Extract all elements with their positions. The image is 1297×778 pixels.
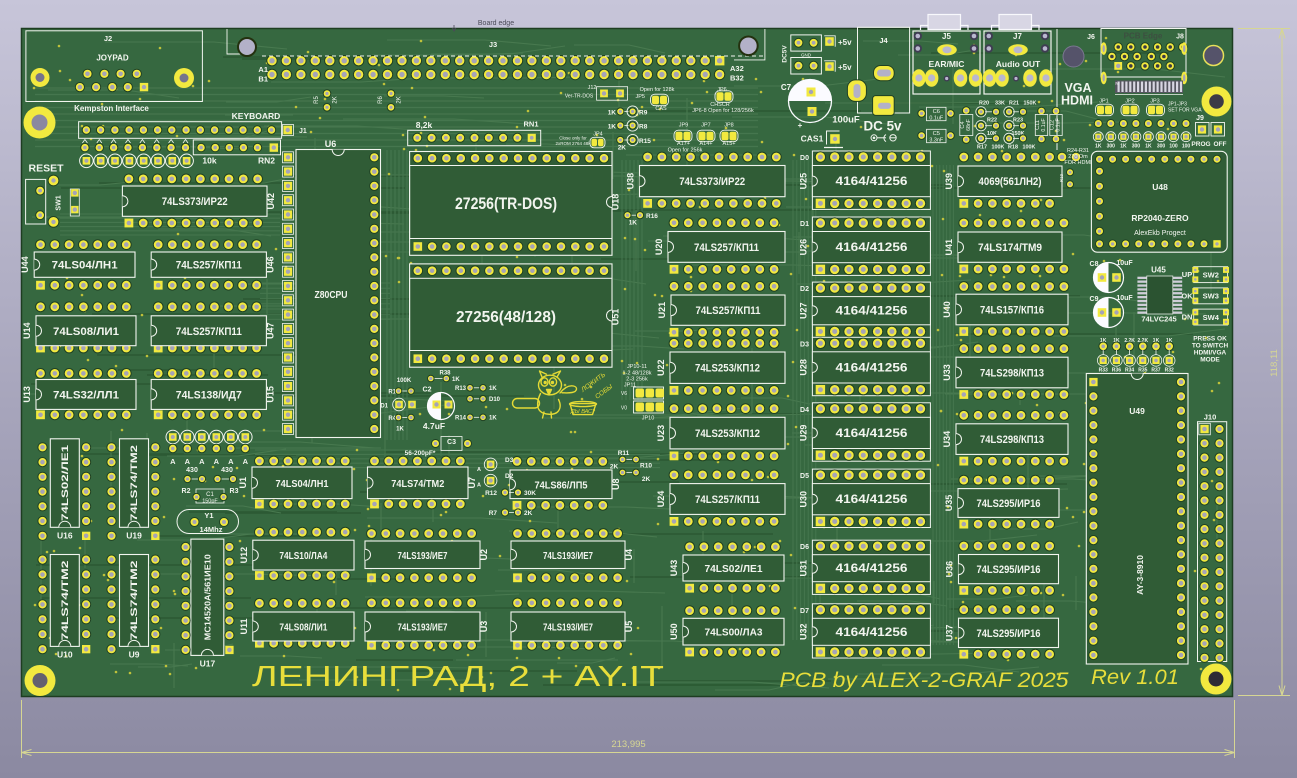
svg-text:4164/41256: 4164/41256 xyxy=(836,494,908,506)
svg-text:D3: D3 xyxy=(505,457,514,464)
svg-text:SW4: SW4 xyxy=(1203,313,1220,322)
svg-text:+: + xyxy=(798,121,803,130)
svg-text:A14+: A14+ xyxy=(700,141,713,147)
svg-text:74LS74/ТМ2: 74LS74/ТМ2 xyxy=(391,479,444,490)
svg-text:B1: B1 xyxy=(258,75,268,84)
svg-text:R19: R19 xyxy=(1059,173,1064,182)
svg-text:PROG: PROG xyxy=(1191,141,1210,148)
svg-text:D2: D2 xyxy=(505,473,514,480)
svg-text:U22: U22 xyxy=(656,359,666,376)
svg-text:74LS32/ЛЛ1: 74LS32/ЛЛ1 xyxy=(53,389,119,401)
svg-text:1K: 1K xyxy=(1095,144,1102,150)
svg-text:U27: U27 xyxy=(799,302,809,319)
svg-text:C1: C1 xyxy=(206,492,214,498)
svg-text:UP: UP xyxy=(1182,270,1192,279)
svg-text:4164/41256: 4164/41256 xyxy=(836,176,908,188)
svg-text:U18: U18 xyxy=(611,194,621,211)
svg-text:Close only for: Close only for xyxy=(559,136,587,141)
svg-text:74LS373/ИР22: 74LS373/ИР22 xyxy=(162,196,228,208)
svg-text:+5v: +5v xyxy=(838,38,852,47)
svg-text:U15: U15 xyxy=(265,386,275,403)
svg-text:U12: U12 xyxy=(239,547,249,564)
svg-text:SET FOR VGA: SET FOR VGA xyxy=(1168,108,1202,114)
svg-text:R21: R21 xyxy=(1009,101,1019,107)
svg-text:D2: D2 xyxy=(800,286,809,293)
svg-text:A: A xyxy=(185,457,191,466)
svg-text:100K: 100K xyxy=(992,145,1005,151)
svg-text:74LS257/КП11: 74LS257/КП11 xyxy=(694,242,759,254)
svg-text:1K: 1K xyxy=(608,110,617,117)
svg-text:27256(48/128): 27256(48/128) xyxy=(456,309,556,326)
svg-text:D7: D7 xyxy=(800,608,809,615)
svg-text:2K: 2K xyxy=(618,145,627,152)
svg-text:C2: C2 xyxy=(423,387,432,394)
svg-text:U1: U1 xyxy=(238,477,248,489)
svg-text:10k: 10k xyxy=(202,156,216,166)
svg-text:R17: R17 xyxy=(977,145,987,151)
svg-text:+5v: +5v xyxy=(838,63,852,72)
svg-text:2K: 2K xyxy=(333,96,339,103)
svg-text:JOYPAD: JOYPAD xyxy=(96,54,129,63)
svg-text:J3: J3 xyxy=(489,40,497,49)
svg-text:Open for 128k: Open for 128k xyxy=(640,87,675,93)
svg-text:R14: R14 xyxy=(455,416,467,422)
svg-text:74LS02/ЛЕ1: 74LS02/ЛЕ1 xyxy=(60,444,71,521)
svg-text:4164/41256: 4164/41256 xyxy=(836,627,908,639)
svg-text:74LS174/ТМ9: 74LS174/ТМ9 xyxy=(978,242,1042,254)
svg-text:JP6-8 Open for 128/256k: JP6-8 Open for 128/256k xyxy=(692,108,754,114)
svg-text:JP2: JP2 xyxy=(1125,99,1134,105)
svg-text:D3: D3 xyxy=(800,341,809,348)
svg-text:U17: U17 xyxy=(200,658,216,668)
svg-text:U26: U26 xyxy=(799,239,809,256)
svg-text:A: A xyxy=(243,457,249,466)
svg-text:Kempston Interface: Kempston Interface xyxy=(74,104,149,113)
svg-text:74LS00/ЛА3: 74LS00/ЛА3 xyxy=(705,628,763,639)
svg-text:C3: C3 xyxy=(447,439,456,446)
svg-text:10uF: 10uF xyxy=(1116,295,1133,302)
svg-text:U7: U7 xyxy=(467,477,477,489)
svg-text:14Mhz: 14Mhz xyxy=(200,525,223,534)
svg-text:J5: J5 xyxy=(942,32,951,41)
svg-text:68nF: 68nF xyxy=(966,119,972,131)
svg-text:R33: R33 xyxy=(1099,368,1108,374)
svg-text:2K: 2K xyxy=(397,96,403,103)
svg-text:Y1: Y1 xyxy=(204,511,213,520)
svg-text:R37: R37 xyxy=(1151,368,1160,374)
svg-text:C5: C5 xyxy=(933,131,940,137)
svg-text:SW3: SW3 xyxy=(1203,292,1219,301)
svg-text:430: 430 xyxy=(186,467,198,474)
svg-text:RP2040-ZERO: RP2040-ZERO xyxy=(1131,213,1189,223)
svg-text:U21: U21 xyxy=(657,302,667,319)
svg-text:4164/41256: 4164/41256 xyxy=(836,242,908,254)
svg-text:R9: R9 xyxy=(639,110,648,117)
svg-text:74LS04/ЛН1: 74LS04/ЛН1 xyxy=(52,260,118,272)
svg-text:Board edge: Board edge xyxy=(478,20,514,27)
svg-text:1K: 1K xyxy=(452,377,460,383)
svg-text:74LS298/КП13: 74LS298/КП13 xyxy=(980,434,1044,446)
svg-text:213,995: 213,995 xyxy=(611,739,645,750)
svg-text:U37: U37 xyxy=(945,625,955,642)
svg-text:J1: J1 xyxy=(299,128,307,135)
svg-text:74LS138/ИД7: 74LS138/ИД7 xyxy=(176,389,242,401)
svg-text:74LS74/ТМ2: 74LS74/ТМ2 xyxy=(129,445,140,521)
svg-text:74LS295/ИР16: 74LS295/ИР16 xyxy=(977,564,1041,576)
svg-text:74LS257/КП11: 74LS257/КП11 xyxy=(176,260,242,272)
svg-text:OK: OK xyxy=(1181,291,1193,300)
svg-text:RN1: RN1 xyxy=(523,120,538,129)
svg-text:74LS08/ЛИ1: 74LS08/ЛИ1 xyxy=(53,326,119,338)
svg-text:U16: U16 xyxy=(57,530,73,540)
svg-text:GND: GND xyxy=(801,52,812,57)
svg-text:1K: 1K xyxy=(1145,144,1152,150)
svg-text:JP10-11: JP10-11 xyxy=(627,364,647,370)
svg-text:CAS: CAS xyxy=(655,106,667,112)
svg-text:30K: 30K xyxy=(524,490,536,497)
svg-text:DN: DN xyxy=(1182,313,1193,322)
svg-text:U36: U36 xyxy=(945,561,955,578)
svg-text:C7: C7 xyxy=(781,83,792,92)
svg-text:U38: U38 xyxy=(626,173,636,190)
svg-text:U34: U34 xyxy=(942,431,952,448)
svg-text:74LS193/ИЕ7: 74LS193/ИЕ7 xyxy=(543,551,593,562)
svg-text:JP1: JP1 xyxy=(1099,99,1108,105)
svg-text:U31: U31 xyxy=(799,560,809,577)
svg-text:2xROM 2764 48k: 2xROM 2764 48k xyxy=(555,141,591,146)
svg-text:J10: J10 xyxy=(1204,413,1217,422)
svg-text:118,11: 118,11 xyxy=(1269,349,1280,377)
svg-text:ЛЕНИНГРАД, 2 + AY.IT: ЛЕНИНГРАД, 2 + AY.IT xyxy=(252,661,664,693)
svg-text:300: 300 xyxy=(1107,144,1116,150)
svg-text:U29: U29 xyxy=(799,425,809,442)
svg-text:JP3: JP3 xyxy=(1150,99,1159,105)
svg-text:2K: 2K xyxy=(524,510,533,517)
svg-text:J7: J7 xyxy=(1013,32,1022,41)
svg-text:74LS257/КП11: 74LS257/КП11 xyxy=(696,305,761,317)
svg-text:RN2: RN2 xyxy=(258,156,275,166)
svg-text:R12: R12 xyxy=(485,490,497,497)
svg-text:N: N xyxy=(1115,81,1118,86)
svg-text:RESET: RESET xyxy=(28,163,64,175)
svg-text:J12: J12 xyxy=(588,85,597,91)
svg-text:1K: 1K xyxy=(629,220,638,227)
svg-text:R32: R32 xyxy=(1165,368,1174,374)
svg-text:R6: R6 xyxy=(378,96,384,104)
svg-text:C8: C8 xyxy=(1090,261,1099,268)
svg-text:1K: 1K xyxy=(489,416,497,422)
svg-text:B32: B32 xyxy=(730,74,744,83)
svg-text:300: 300 xyxy=(1157,144,1166,150)
svg-text:D10: D10 xyxy=(489,397,501,403)
svg-text:74LS295/ИР16: 74LS295/ИР16 xyxy=(977,498,1041,510)
svg-text:R34: R34 xyxy=(1125,368,1134,374)
svg-text:D1: D1 xyxy=(380,404,388,410)
svg-text:U49: U49 xyxy=(1129,406,1145,416)
svg-text:R10: R10 xyxy=(640,463,652,470)
svg-text:74LS86/ЛП5: 74LS86/ЛП5 xyxy=(535,480,588,491)
svg-text:ДЫ ВАС?: ДЫ ВАС? xyxy=(570,409,596,415)
svg-text:33K: 33K xyxy=(995,101,1005,107)
svg-text:74LS257/КП11: 74LS257/КП11 xyxy=(176,326,242,338)
svg-text:74LS253/КП12: 74LS253/КП12 xyxy=(695,428,760,440)
svg-text:1K: 1K xyxy=(396,427,404,433)
svg-text:D6: D6 xyxy=(800,544,809,551)
svg-text:A: A xyxy=(228,457,234,466)
svg-text:MODE: MODE xyxy=(1200,357,1220,364)
svg-text:U8: U8 xyxy=(611,479,621,491)
svg-text:R36: R36 xyxy=(1112,368,1121,374)
svg-text:U13: U13 xyxy=(22,386,32,403)
svg-text:2K: 2K xyxy=(610,464,619,471)
svg-text:A: A xyxy=(477,467,481,473)
svg-text:U14: U14 xyxy=(22,323,32,340)
svg-text:74LS08/ЛИ1: 74LS08/ЛИ1 xyxy=(279,623,327,634)
svg-text:74LS257/КП11: 74LS257/КП11 xyxy=(695,494,760,506)
svg-text:74LS74/ТМ2: 74LS74/ТМ2 xyxy=(129,561,140,641)
svg-text:SW1: SW1 xyxy=(56,195,63,210)
svg-text:74LS193/ИЕ7: 74LS193/ИЕ7 xyxy=(398,623,448,634)
svg-text:D1: D1 xyxy=(800,221,809,228)
svg-text:U28: U28 xyxy=(799,359,809,376)
svg-text:MC14520A/561ИЕ10: MC14520A/561ИЕ10 xyxy=(202,554,212,640)
svg-text:PCB by ALEX-2-GRAF 2025: PCB by ALEX-2-GRAF 2025 xyxy=(780,669,1069,692)
svg-text:FOR HDMI: FOR HDMI xyxy=(1064,160,1092,166)
svg-text:KEYBOARD: KEYBOARD xyxy=(232,111,281,121)
svg-text:100: 100 xyxy=(1169,144,1178,150)
svg-text:U41: U41 xyxy=(944,239,954,256)
svg-text:U35: U35 xyxy=(944,495,954,512)
svg-text:R16: R16 xyxy=(646,213,658,220)
svg-text:A15+: A15+ xyxy=(723,141,736,147)
svg-text:U48: U48 xyxy=(1152,182,1168,192)
svg-text:U44: U44 xyxy=(20,256,30,273)
svg-text:R2: R2 xyxy=(182,488,191,495)
svg-text:100uF: 100uF xyxy=(832,115,860,126)
svg-text:74LS04/ЛН1: 74LS04/ЛН1 xyxy=(276,479,329,490)
svg-text:JP10: JP10 xyxy=(642,416,655,422)
svg-text:A: A xyxy=(477,483,481,489)
svg-text:2K: 2K xyxy=(642,476,651,483)
svg-text:4.7uF: 4.7uF xyxy=(423,421,445,431)
svg-text:JP11: JP11 xyxy=(624,383,636,389)
svg-text:U33: U33 xyxy=(942,364,952,381)
svg-text:U19: U19 xyxy=(126,530,142,540)
svg-text:300: 300 xyxy=(1132,144,1141,150)
svg-text:0.1uF: 0.1uF xyxy=(1041,118,1047,131)
svg-text:A1: A1 xyxy=(258,65,268,74)
svg-text:4164/41256: 4164/41256 xyxy=(836,306,908,318)
svg-text:D5: D5 xyxy=(800,473,809,480)
svg-text:U5: U5 xyxy=(624,621,634,633)
svg-text:150K: 150K xyxy=(1024,101,1037,107)
svg-text:4069(561ЛН2): 4069(561ЛН2) xyxy=(979,176,1042,188)
svg-text:U32: U32 xyxy=(799,624,809,641)
svg-text:74LS10/ЛА4: 74LS10/ЛА4 xyxy=(279,551,327,562)
svg-text:U10: U10 xyxy=(57,649,73,659)
svg-text:100: 100 xyxy=(1182,144,1191,150)
svg-text:J4: J4 xyxy=(879,36,888,45)
svg-text:U2: U2 xyxy=(479,549,489,561)
svg-text:R5: R5 xyxy=(314,96,320,104)
svg-text:56-200pF*: 56-200pF* xyxy=(405,450,436,457)
svg-text:150pF: 150pF xyxy=(202,499,218,505)
svg-text:EAR/MIC: EAR/MIC xyxy=(929,59,965,69)
svg-text:U47: U47 xyxy=(265,323,275,340)
svg-text:U9: U9 xyxy=(129,649,140,659)
svg-text:U24: U24 xyxy=(656,491,666,508)
svg-text:27256(TR-DOS): 27256(TR-DOS) xyxy=(455,194,557,213)
svg-text:4164/41256: 4164/41256 xyxy=(836,362,908,374)
svg-text:1K: 1K xyxy=(1120,144,1127,150)
svg-text:74LS373/ИР22: 74LS373/ИР22 xyxy=(679,176,745,188)
svg-text:U25: U25 xyxy=(799,173,809,190)
svg-text:4164/41256: 4164/41256 xyxy=(836,428,908,440)
svg-text:Open for 256k: Open for 256k xyxy=(668,148,703,154)
svg-text:J2: J2 xyxy=(104,34,112,43)
svg-text:R7: R7 xyxy=(489,510,498,517)
svg-text:AY-3-8910: AY-3-8910 xyxy=(1135,555,1145,595)
svg-text:Ver-TR-DOS: Ver-TR-DOS xyxy=(565,94,594,100)
svg-text:74LS02/ЛЕ1: 74LS02/ЛЕ1 xyxy=(705,564,763,575)
svg-text:A: A xyxy=(199,457,205,466)
svg-text:JP9: JP9 xyxy=(679,123,688,129)
svg-text:74LS193/ИЕ7: 74LS193/ИЕ7 xyxy=(543,623,593,634)
svg-text:DC 5v: DC 5v xyxy=(864,119,902,134)
svg-text:1K: 1K xyxy=(608,124,617,131)
svg-text:V0: V0 xyxy=(621,406,627,412)
svg-text:CAS1: CAS1 xyxy=(801,134,824,144)
svg-text:74LS74/ТМ2: 74LS74/ТМ2 xyxy=(60,561,71,641)
svg-text:3.3nF: 3.3nF xyxy=(929,138,943,144)
svg-text:74LVC245: 74LVC245 xyxy=(1141,315,1176,324)
svg-text:74LS193/ИЕ7: 74LS193/ИЕ7 xyxy=(398,551,448,562)
svg-text:A: A xyxy=(214,457,220,466)
svg-text:0.1uF: 0.1uF xyxy=(929,116,943,122)
svg-text:74LS295/ИР16: 74LS295/ИР16 xyxy=(977,628,1041,640)
svg-text:OFF: OFF xyxy=(1214,141,1227,148)
svg-text:SW2: SW2 xyxy=(1203,270,1219,279)
svg-text:PRESS OK: PRESS OK xyxy=(1193,336,1227,343)
svg-text:U42: U42 xyxy=(266,193,276,210)
svg-text:R18: R18 xyxy=(1008,145,1018,151)
svg-text:J8: J8 xyxy=(1176,34,1184,41)
svg-text:U46: U46 xyxy=(265,256,275,273)
svg-text:4164/41256: 4164/41256 xyxy=(836,563,908,575)
svg-text:U39: U39 xyxy=(944,173,954,190)
svg-text:R13: R13 xyxy=(455,386,467,392)
svg-text:R8: R8 xyxy=(639,124,648,131)
svg-text:Audio OUT: Audio OUT xyxy=(996,59,1041,69)
svg-text:100K: 100K xyxy=(397,378,412,384)
svg-text:J9: J9 xyxy=(1196,115,1204,122)
svg-text:U50: U50 xyxy=(669,623,679,640)
svg-text:A17+: A17+ xyxy=(677,141,690,147)
svg-text:0.1uF: 0.1uF xyxy=(1056,118,1062,131)
svg-text:AlexEkb Progect: AlexEkb Progect xyxy=(1134,230,1186,237)
svg-text:D0: D0 xyxy=(800,155,809,162)
svg-text:8,2k: 8,2k xyxy=(416,120,433,130)
svg-text:V6: V6 xyxy=(621,391,627,397)
svg-text:JP8: JP8 xyxy=(724,123,733,129)
svg-text:74LS253/КП12: 74LS253/КП12 xyxy=(695,363,760,375)
svg-text:10uF: 10uF xyxy=(1116,260,1133,267)
svg-text:D4: D4 xyxy=(800,407,809,414)
svg-text:100K: 100K xyxy=(1023,145,1036,151)
svg-text:U30: U30 xyxy=(799,491,809,508)
svg-text:Z80CPU: Z80CPU xyxy=(315,290,348,301)
svg-text:HDMI: HDMI xyxy=(1061,94,1093,108)
svg-text:U40: U40 xyxy=(942,301,952,318)
svg-text:A: A xyxy=(170,457,176,466)
svg-text:JP6: JP6 xyxy=(717,87,726,93)
svg-text:U23: U23 xyxy=(656,425,666,442)
svg-text:U20: U20 xyxy=(654,239,664,256)
svg-text:U45: U45 xyxy=(1151,266,1166,275)
svg-text:U51: U51 xyxy=(611,309,621,326)
svg-text:PCB Edge: PCB Edge xyxy=(1124,32,1163,41)
svg-text:430: 430 xyxy=(221,467,233,474)
svg-text:U11: U11 xyxy=(239,618,249,634)
svg-text:74LS298/КП13: 74LS298/КП13 xyxy=(980,368,1044,380)
svg-text:JP7: JP7 xyxy=(701,123,710,129)
svg-text:R35: R35 xyxy=(1138,368,1147,374)
svg-text:Rev 1.01: Rev 1.01 xyxy=(1091,666,1179,689)
svg-text:1K: 1K xyxy=(489,386,497,392)
svg-text:DC5V: DC5V xyxy=(782,45,789,63)
svg-text:74LS157/КП16: 74LS157/КП16 xyxy=(980,305,1044,317)
svg-text:J6: J6 xyxy=(1087,34,1095,41)
svg-text:U43: U43 xyxy=(669,560,679,577)
svg-text:C9: C9 xyxy=(1090,296,1099,303)
svg-text:JP5: JP5 xyxy=(636,94,645,100)
svg-text:A32: A32 xyxy=(730,64,744,73)
svg-text:U3: U3 xyxy=(479,621,489,633)
svg-text:U4: U4 xyxy=(624,549,634,561)
svg-text:HDMI/VGA: HDMI/VGA xyxy=(1194,350,1227,357)
svg-text:C6: C6 xyxy=(933,109,940,115)
svg-text:R15: R15 xyxy=(639,138,651,145)
svg-text:JP4: JP4 xyxy=(593,132,602,138)
svg-text:TO SWITCH: TO SWITCH xyxy=(1192,343,1229,350)
svg-text:U6: U6 xyxy=(325,139,337,149)
svg-text:R20: R20 xyxy=(979,101,989,107)
